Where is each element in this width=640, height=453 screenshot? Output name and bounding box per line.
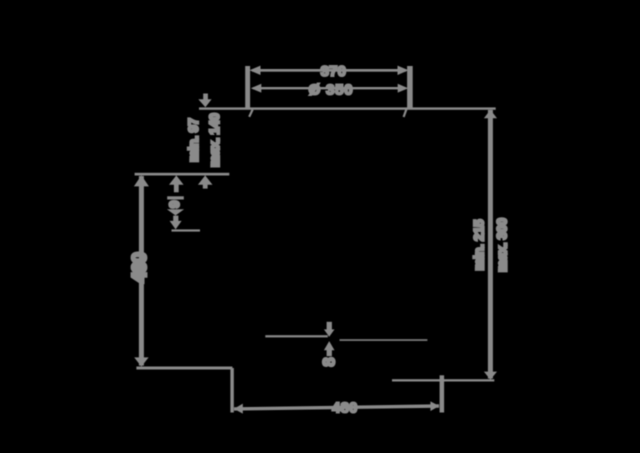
svg-text:8: 8 bbox=[321, 357, 339, 366]
svg-text:max. 300: max. 300 bbox=[494, 218, 509, 272]
svg-text:min. 215: min. 215 bbox=[471, 219, 486, 271]
svg-text:min. 97: min. 97 bbox=[186, 118, 201, 162]
svg-text:370: 370 bbox=[321, 63, 347, 80]
svg-text:480: 480 bbox=[332, 400, 358, 416]
svg-text:6: 6 bbox=[166, 201, 181, 209]
svg-text:Ø 350: Ø 350 bbox=[309, 81, 354, 98]
svg-text:460: 460 bbox=[128, 252, 151, 283]
svg-text:max. 140: max. 140 bbox=[207, 113, 222, 167]
